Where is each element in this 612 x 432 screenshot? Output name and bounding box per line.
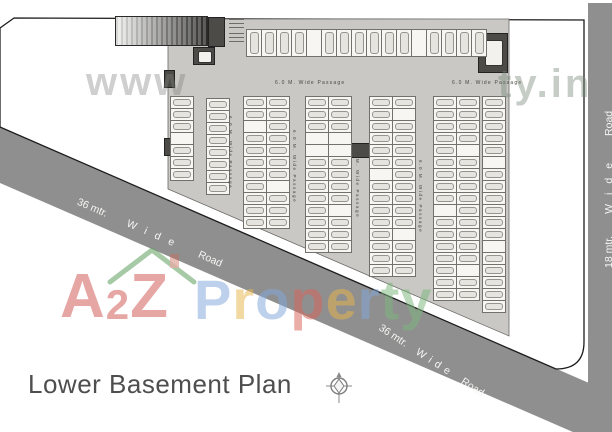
- car-icon: [459, 123, 478, 131]
- car-icon: [459, 171, 478, 179]
- car-icon: [372, 183, 391, 191]
- car-icon: [395, 267, 414, 275]
- car-icon: [459, 135, 478, 143]
- parking-stall: [369, 264, 393, 277]
- parking-stall: [433, 288, 457, 301]
- car-icon: [269, 111, 288, 119]
- compass-north-icon: [325, 372, 353, 406]
- car-icon: [459, 219, 478, 227]
- car-icon: [246, 195, 265, 203]
- passage-label: 6.0 M. Wide Passage: [275, 80, 345, 86]
- car-icon: [485, 135, 504, 143]
- car-icon: [395, 207, 414, 215]
- car-icon: [372, 207, 391, 215]
- car-icon: [250, 32, 259, 53]
- car-icon: [269, 171, 288, 179]
- car-icon: [209, 113, 228, 121]
- car-icon: [395, 147, 414, 155]
- car-icon: [430, 32, 439, 53]
- car-icon: [372, 195, 391, 203]
- car-icon: [485, 171, 504, 179]
- car-icon: [246, 111, 265, 119]
- car-icon: [209, 137, 228, 145]
- car-icon: [308, 207, 327, 215]
- car-icon: [308, 195, 327, 203]
- car-icon: [395, 195, 414, 203]
- parking-stall: [206, 182, 230, 195]
- parking-stall: [291, 29, 307, 57]
- car-icon: [436, 123, 455, 131]
- car-icon: [485, 123, 504, 131]
- passage-label-vertical: 6.0 M. Wide Passage: [228, 116, 233, 189]
- car-icon: [308, 243, 327, 251]
- page-title: Lower Basement Plan: [28, 369, 292, 400]
- car-icon: [459, 279, 478, 287]
- car-icon: [209, 101, 228, 109]
- car-icon: [246, 171, 265, 179]
- car-icon: [340, 32, 349, 53]
- car-icon: [372, 255, 391, 263]
- car-icon: [485, 111, 504, 119]
- car-icon: [331, 183, 350, 191]
- car-icon: [209, 149, 228, 157]
- car-icon: [246, 147, 265, 155]
- car-icon: [372, 219, 391, 227]
- car-icon: [436, 279, 455, 287]
- car-icon: [436, 147, 455, 155]
- car-icon: [485, 303, 504, 311]
- car-icon: [308, 171, 327, 179]
- parking-stall: [321, 29, 337, 57]
- car-icon: [209, 185, 228, 193]
- car-icon: [370, 32, 379, 53]
- car-icon: [269, 195, 288, 203]
- car-icon: [400, 32, 409, 53]
- car-icon: [331, 159, 350, 167]
- car-icon: [269, 207, 288, 215]
- car-icon: [436, 171, 455, 179]
- car-icon: [269, 99, 288, 107]
- parking-stall: [441, 29, 457, 57]
- car-icon: [459, 195, 478, 203]
- car-icon: [331, 171, 350, 179]
- passage-label-vertical: 6.0 M. Wide Passage: [418, 160, 423, 233]
- car-icon: [459, 255, 478, 263]
- car-icon: [265, 32, 274, 53]
- car-icon: [395, 99, 414, 107]
- car-icon: [372, 147, 391, 155]
- car-icon: [485, 147, 504, 155]
- car-icon: [436, 135, 455, 143]
- car-icon: [460, 32, 469, 53]
- road-label-18m: 18 mtr.WideRoad: [603, 111, 612, 268]
- car-icon: [269, 159, 288, 167]
- car-icon: [308, 111, 327, 119]
- parking-stall: [305, 240, 329, 253]
- car-icon: [445, 32, 454, 53]
- passage-label: 6.0 M. Wide Passage: [452, 80, 522, 86]
- parking-stall: [243, 216, 267, 229]
- car-icon: [295, 32, 304, 53]
- car-icon: [173, 171, 192, 179]
- parking-stall: [276, 29, 292, 57]
- car-icon: [269, 123, 288, 131]
- car-icon: [372, 159, 391, 167]
- car-icon: [331, 111, 350, 119]
- parking-stall: [392, 264, 416, 277]
- car-icon: [173, 99, 192, 107]
- car-icon: [331, 123, 350, 131]
- car-icon: [436, 267, 455, 275]
- parking-stall: [456, 288, 480, 301]
- car-icon: [246, 183, 265, 191]
- car-icon: [485, 99, 504, 107]
- car-icon: [395, 123, 414, 131]
- car-icon: [395, 183, 414, 191]
- car-icon: [485, 219, 504, 227]
- parking-stall: [456, 29, 472, 57]
- parking-stall: [482, 300, 506, 313]
- car-icon: [331, 219, 350, 227]
- car-icon: [325, 32, 334, 53]
- car-icon: [436, 159, 455, 167]
- car-icon: [308, 219, 327, 227]
- car-icon: [436, 243, 455, 251]
- parking-stall: [261, 29, 277, 57]
- parking-stall: [306, 29, 322, 57]
- car-icon: [269, 219, 288, 227]
- car-icon: [372, 231, 391, 239]
- car-icon: [459, 183, 478, 191]
- car-icon: [385, 32, 394, 53]
- car-icon: [459, 231, 478, 239]
- parking-stall: [366, 29, 382, 57]
- car-icon: [436, 255, 455, 263]
- car-icon: [485, 231, 504, 239]
- car-icon: [395, 219, 414, 227]
- parking-stall: [336, 29, 352, 57]
- car-icon: [173, 147, 192, 155]
- car-icon: [436, 219, 455, 227]
- car-icon: [308, 183, 327, 191]
- lift-top-left: [193, 47, 215, 65]
- car-icon: [459, 207, 478, 215]
- car-icon: [395, 135, 414, 143]
- car-icon: [395, 243, 414, 251]
- lift-icon: [198, 51, 212, 63]
- edge-block-1: [164, 70, 175, 88]
- car-icon: [308, 123, 327, 131]
- core-block: [208, 17, 225, 47]
- car-icon: [436, 195, 455, 203]
- car-icon: [331, 99, 350, 107]
- car-icon: [372, 267, 391, 275]
- lift-icon: [485, 40, 503, 66]
- car-icon: [459, 291, 478, 299]
- car-icon: [372, 123, 391, 131]
- parking-stall: [351, 29, 367, 57]
- car-icon: [173, 111, 192, 119]
- road-wide-text: Wide: [603, 154, 612, 214]
- car-icon: [269, 147, 288, 155]
- car-icon: [246, 219, 265, 227]
- car-icon: [395, 255, 414, 263]
- parking-stall: [328, 240, 352, 253]
- ramp-note-2: [229, 33, 244, 43]
- parking-stall: [426, 29, 442, 57]
- car-icon: [395, 171, 414, 179]
- car-icon: [436, 99, 455, 107]
- car-icon: [459, 243, 478, 251]
- car-icon: [485, 195, 504, 203]
- car-icon: [459, 111, 478, 119]
- car-icon: [331, 195, 350, 203]
- car-icon: [372, 135, 391, 143]
- parking-stall: [266, 216, 290, 229]
- ramp-note-1: [229, 19, 244, 29]
- parking-stall: [411, 29, 427, 57]
- parking-stall: [246, 29, 262, 57]
- car-icon: [485, 207, 504, 215]
- car-icon: [280, 32, 289, 53]
- car-icon: [475, 32, 484, 53]
- car-icon: [372, 99, 391, 107]
- car-icon: [485, 255, 504, 263]
- car-icon: [372, 111, 391, 119]
- road-word-text: Road: [603, 111, 612, 136]
- car-icon: [246, 99, 265, 107]
- car-icon: [246, 207, 265, 215]
- entry-ramp: [115, 16, 208, 46]
- car-icon: [436, 231, 455, 239]
- passage-label-vertical: 6.0 M. Wide Passage: [292, 130, 297, 203]
- car-icon: [459, 99, 478, 107]
- car-icon: [459, 159, 478, 167]
- car-icon: [173, 159, 192, 167]
- passage-label-vertical: 6.0 M. Wide Passage: [355, 145, 360, 218]
- parking-stall: [396, 29, 412, 57]
- car-icon: [173, 123, 192, 131]
- car-icon: [485, 291, 504, 299]
- car-icon: [485, 267, 504, 275]
- car-icon: [436, 291, 455, 299]
- car-icon: [269, 135, 288, 143]
- parking-stall: [381, 29, 397, 57]
- car-icon: [485, 279, 504, 287]
- car-icon: [331, 243, 350, 251]
- car-icon: [246, 159, 265, 167]
- car-icon: [209, 161, 228, 169]
- car-icon: [246, 135, 265, 143]
- car-icon: [308, 159, 327, 167]
- car-icon: [436, 111, 455, 119]
- car-icon: [209, 125, 228, 133]
- car-icon: [355, 32, 364, 53]
- car-icon: [331, 231, 350, 239]
- car-icon: [436, 183, 455, 191]
- car-icon: [395, 159, 414, 167]
- car-icon: [485, 183, 504, 191]
- road-dim-text: 18 mtr.: [603, 236, 612, 268]
- car-icon: [372, 243, 391, 251]
- parking-stall: [471, 29, 487, 57]
- car-icon: [209, 173, 228, 181]
- car-icon: [308, 231, 327, 239]
- parking-stall: [170, 168, 194, 181]
- basement-plan-image: 6.0 M. Wide Passage6.0 M. Wide Passage6.…: [0, 0, 612, 432]
- car-icon: [308, 99, 327, 107]
